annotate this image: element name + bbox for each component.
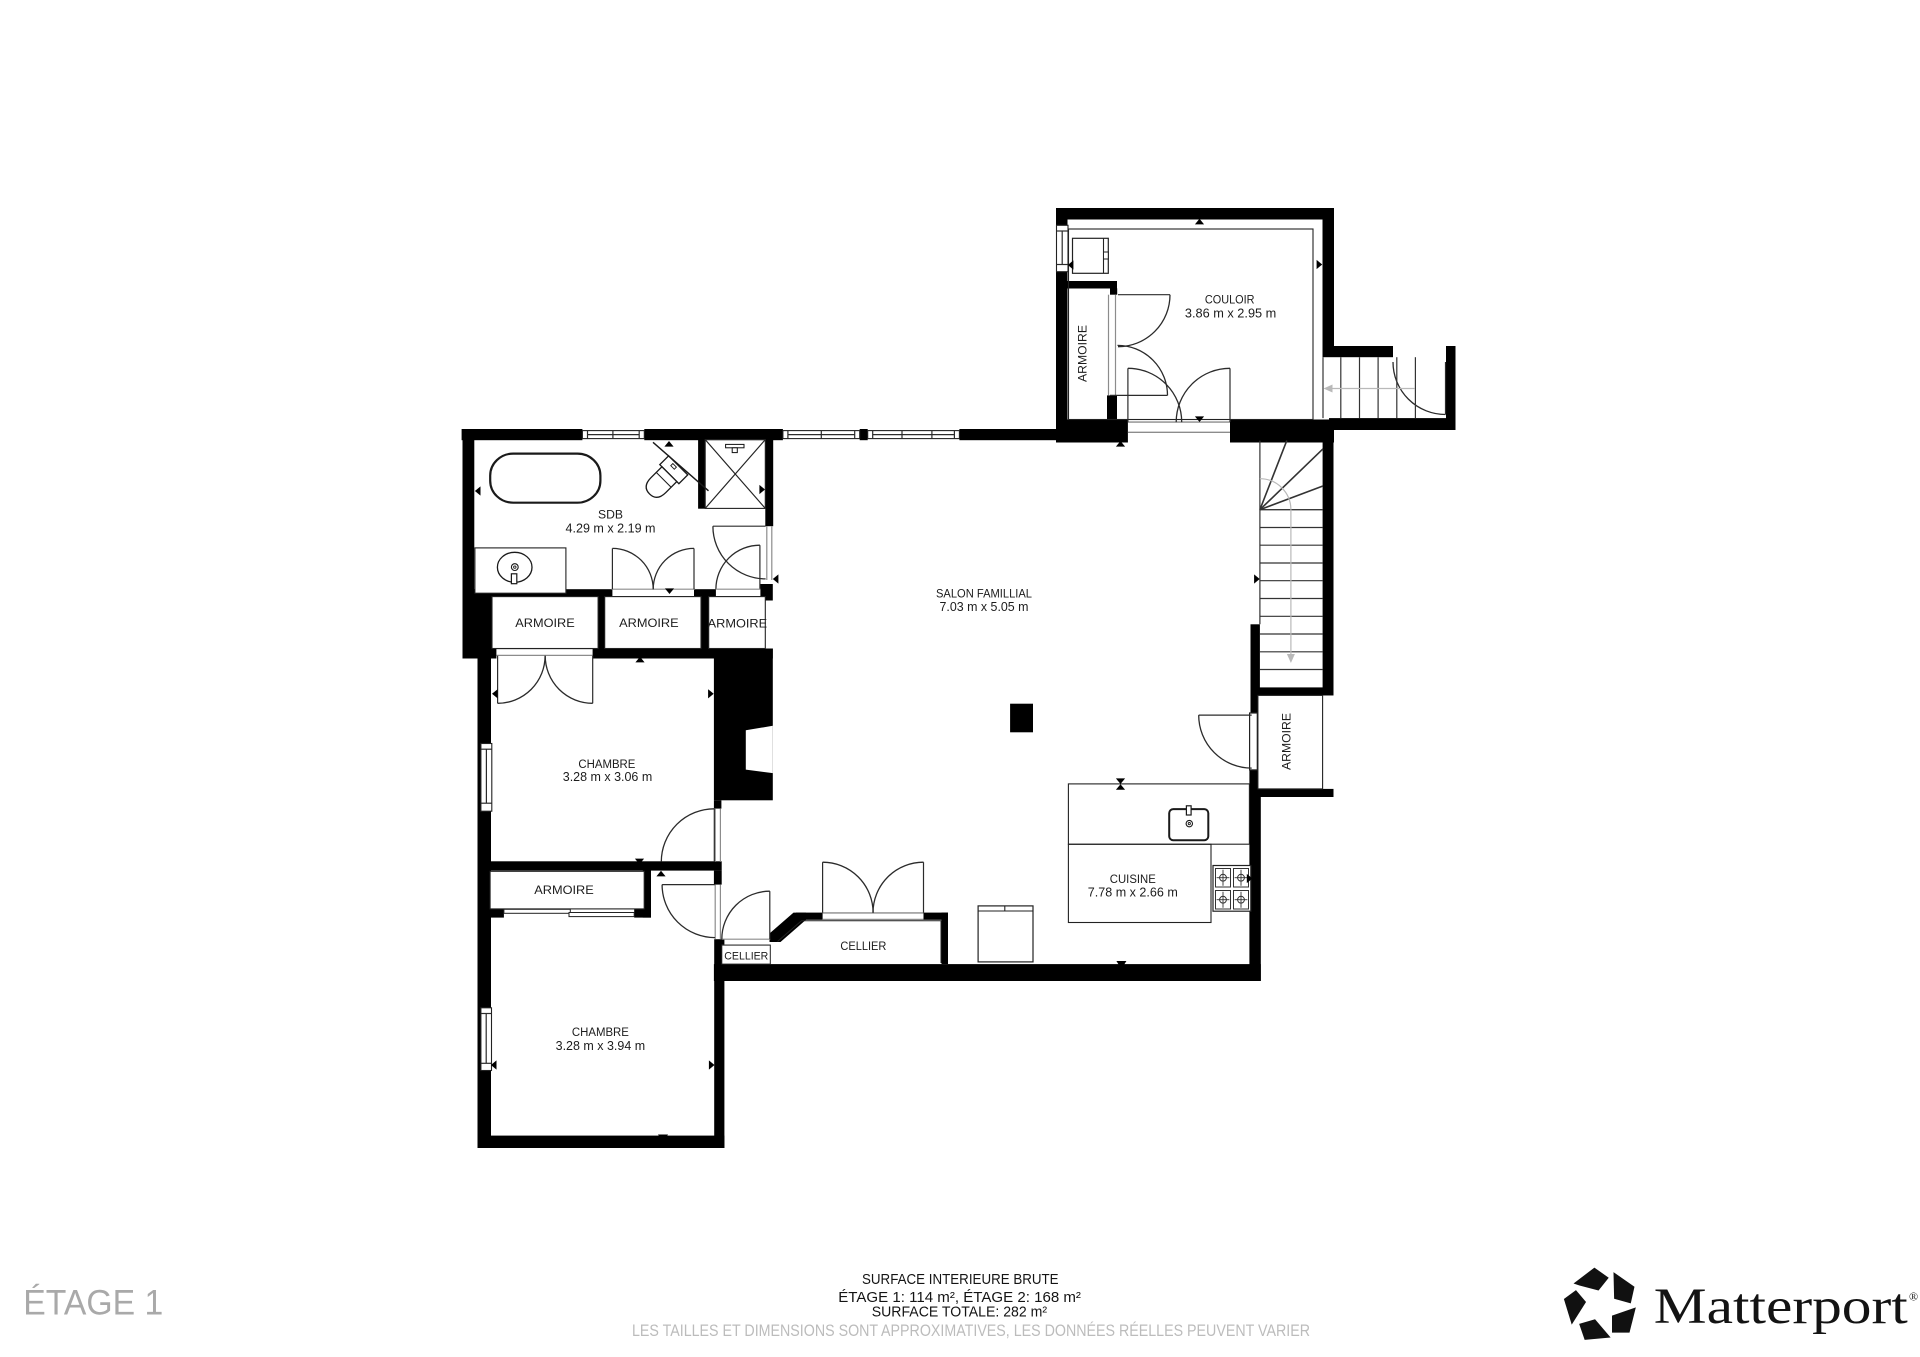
svg-text:CHAMBRE: CHAMBRE <box>572 1025 629 1039</box>
svg-text:4.29 m x 2.19 m: 4.29 m x 2.19 m <box>566 521 656 536</box>
svg-text:®: ® <box>1909 1290 1918 1304</box>
svg-text:3.28 m x 3.94 m: 3.28 m x 3.94 m <box>556 1038 646 1053</box>
svg-text:3.28 m x 3.06 m: 3.28 m x 3.06 m <box>563 769 653 784</box>
svg-text:ARMOIRE: ARMOIRE <box>1076 325 1090 382</box>
svg-text:CELLIER: CELLIER <box>840 941 886 953</box>
svg-text:ARMOIRE: ARMOIRE <box>515 616 575 630</box>
svg-text:7.03 m x 5.05 m: 7.03 m x 5.05 m <box>940 599 1029 614</box>
svg-text:ÉTAGE 1: 114 m², ÉTAGE 2: 168: ÉTAGE 1: 114 m², ÉTAGE 2: 168 m² <box>838 1289 1081 1306</box>
svg-text:ARMOIRE: ARMOIRE <box>708 617 768 631</box>
svg-text:ÉTAGE 1: ÉTAGE 1 <box>23 1283 163 1323</box>
svg-text:ARMOIRE: ARMOIRE <box>619 616 679 630</box>
svg-text:SDB: SDB <box>598 508 623 522</box>
svg-text:7.78 m x 2.66 m: 7.78 m x 2.66 m <box>1088 885 1178 900</box>
svg-text:CELLIER: CELLIER <box>724 951 768 963</box>
svg-text:COULOIR: COULOIR <box>1205 292 1255 306</box>
svg-text:SURFACE TOTALE: 282 m²: SURFACE TOTALE: 282 m² <box>872 1305 1047 1321</box>
svg-text:ARMOIRE: ARMOIRE <box>534 883 594 897</box>
svg-text:SURFACE INTERIEURE BRUTE: SURFACE INTERIEURE BRUTE <box>862 1272 1059 1288</box>
svg-text:ARMOIRE: ARMOIRE <box>1280 713 1294 770</box>
svg-text:3.86 m x 2.95 m: 3.86 m x 2.95 m <box>1185 305 1276 320</box>
svg-text:Matterport: Matterport <box>1654 1278 1908 1334</box>
svg-text:LES TAILLES ET DIMENSIONS SONT: LES TAILLES ET DIMENSIONS SONT APPROXIMA… <box>632 1321 1310 1340</box>
